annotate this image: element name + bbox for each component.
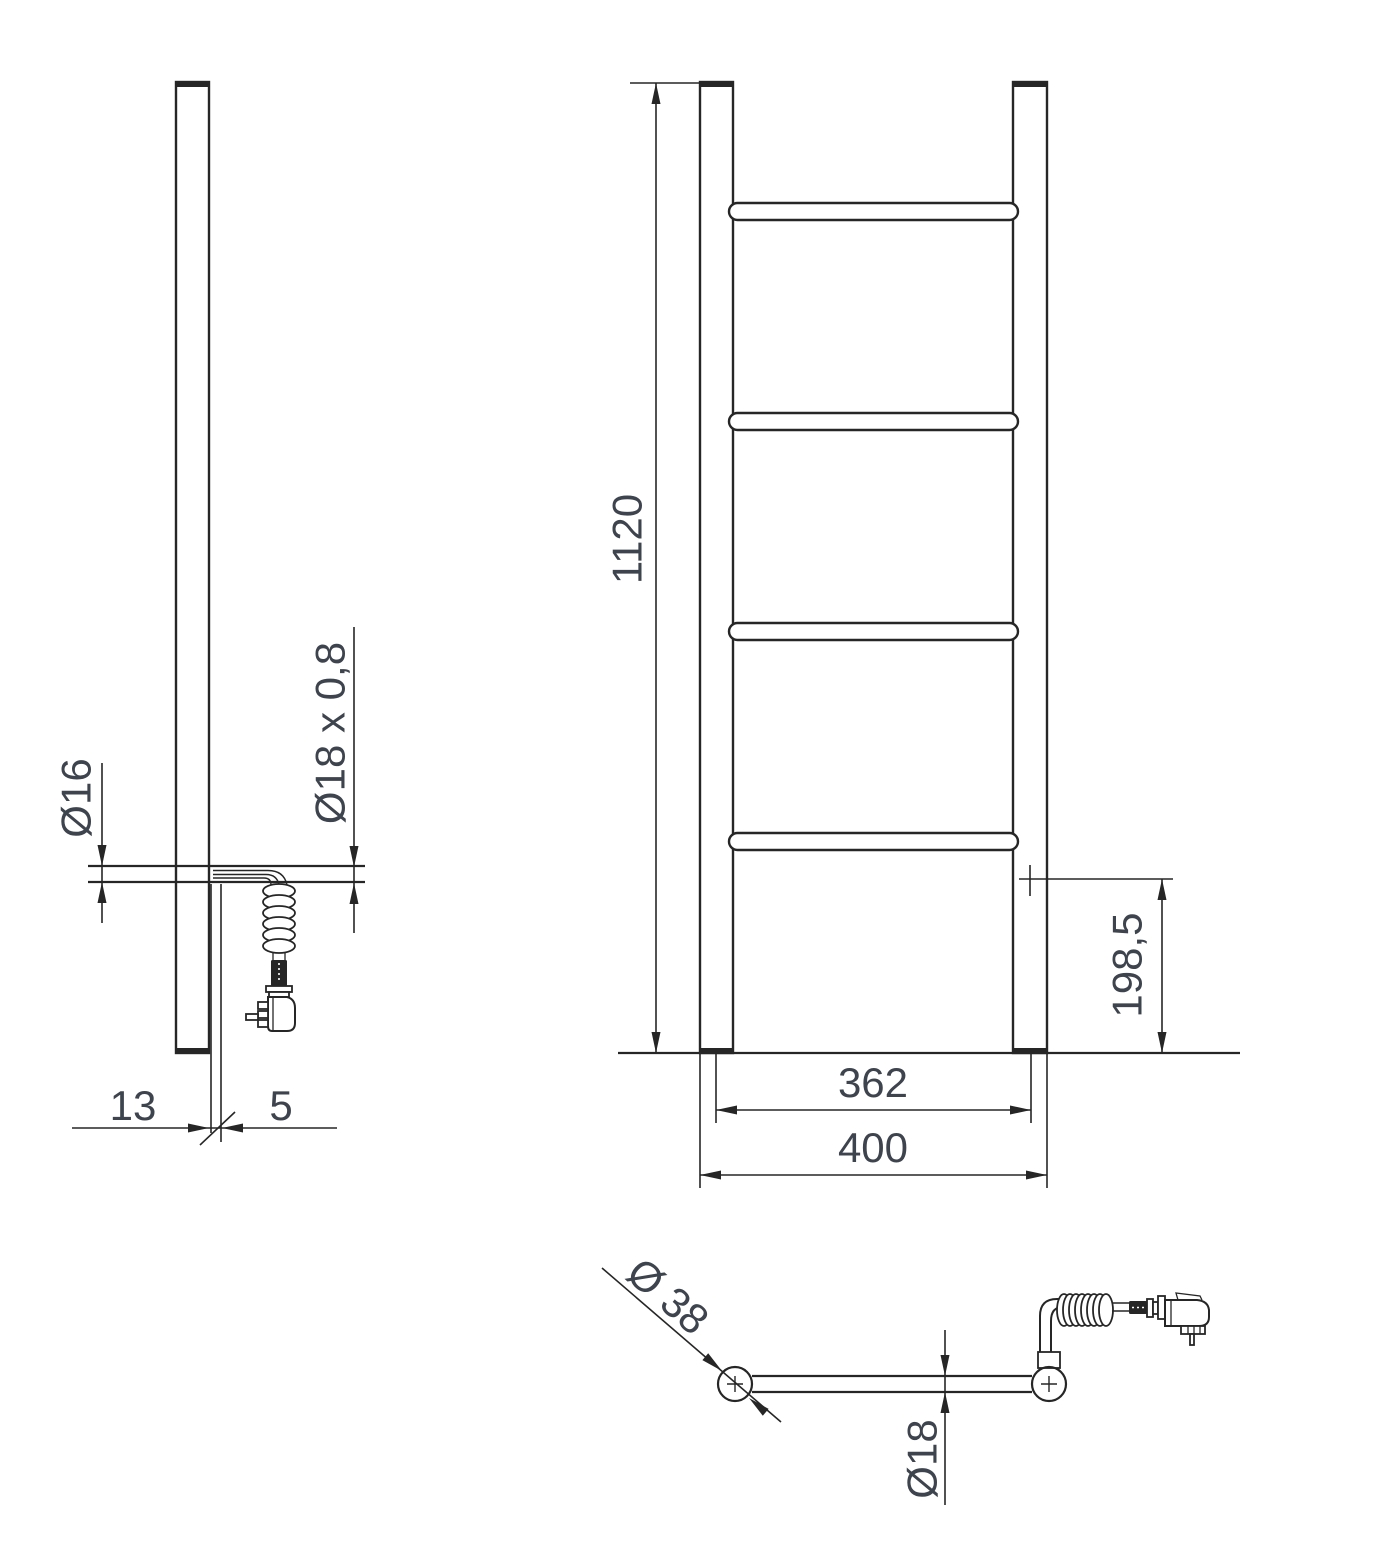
dimension-overall-height: 1120: [604, 83, 661, 1053]
left-vertical-tube: [700, 82, 733, 1053]
dimension-offset-and-thickness: 13 5: [72, 1082, 337, 1145]
label-crossbar-diameter: Ø18: [899, 1419, 946, 1498]
right-tube-top-cap: [1013, 82, 1047, 87]
rung-2: [729, 413, 1018, 430]
cable-stem: [273, 953, 285, 960]
side-view: Ø16 Ø18 x 0,8 13 5: [53, 82, 366, 1145]
dimension-overall-width: 400: [700, 1124, 1047, 1180]
dimension-element-diameter: Ø16: [53, 758, 107, 923]
towel-rail-technical-drawing: Ø16 Ø18 x 0,8 13 5: [0, 0, 1392, 1557]
right-vertical-tube: [1013, 82, 1047, 1053]
dimension-vertical-tube-diameter: Ø 38: [602, 1248, 781, 1422]
vertical-tube-side: [176, 82, 209, 1053]
tube-bottom-cap: [176, 1048, 209, 1053]
power-plug-top: [1129, 1293, 1209, 1345]
spiral-cable-coil: [263, 884, 295, 953]
right-center-cross: [1041, 1376, 1057, 1392]
label-vertical-tube-diameter: Ø 38: [618, 1248, 718, 1343]
label-tube-centers-width: 362: [838, 1059, 908, 1106]
plug-pin-block: [1181, 1326, 1205, 1334]
technical-drawing-page: Ø16 Ø18 x 0,8 13 5: [0, 0, 1392, 1557]
label-tube-spec: Ø18 x 0,8: [307, 642, 354, 824]
tube-top-cap: [176, 82, 209, 87]
element-collar: [1038, 1352, 1060, 1368]
label-bracket-thickness: 5: [269, 1082, 292, 1129]
dimension-crossbar-diameter: Ø18: [899, 1330, 950, 1505]
label-overall-width: 400: [838, 1124, 908, 1171]
label-wall-offset: 13: [110, 1082, 157, 1129]
label-overall-height: 1120: [604, 494, 651, 584]
plug-earth-pin: [246, 1014, 258, 1020]
plug-flange-upper: [266, 986, 292, 992]
label-element-diameter: Ø16: [53, 758, 100, 837]
dimension-tube-centers-width: 362: [716, 1059, 1031, 1115]
spiral-cable-top: [1040, 1294, 1129, 1352]
rung-3: [729, 623, 1018, 640]
dimension-tube-spec: Ø18 x 0,8: [307, 627, 359, 933]
plug-pin-1: [258, 1002, 268, 1009]
label-element-offset: 198,5: [1104, 912, 1151, 1017]
plug-pin-3: [258, 1020, 268, 1027]
plug-earth-pin-top: [1190, 1334, 1194, 1345]
rung-4: [729, 833, 1018, 850]
rung-1: [729, 203, 1018, 220]
plug-pin-2: [258, 1011, 268, 1018]
plug-body: [268, 997, 295, 1031]
crossbar-rungs: [729, 203, 1018, 850]
top-view: Ø 38 Ø18: [602, 1248, 1209, 1505]
front-view: 1120 198,5 362 400: [604, 82, 1241, 1188]
power-plug-side: [246, 997, 295, 1031]
